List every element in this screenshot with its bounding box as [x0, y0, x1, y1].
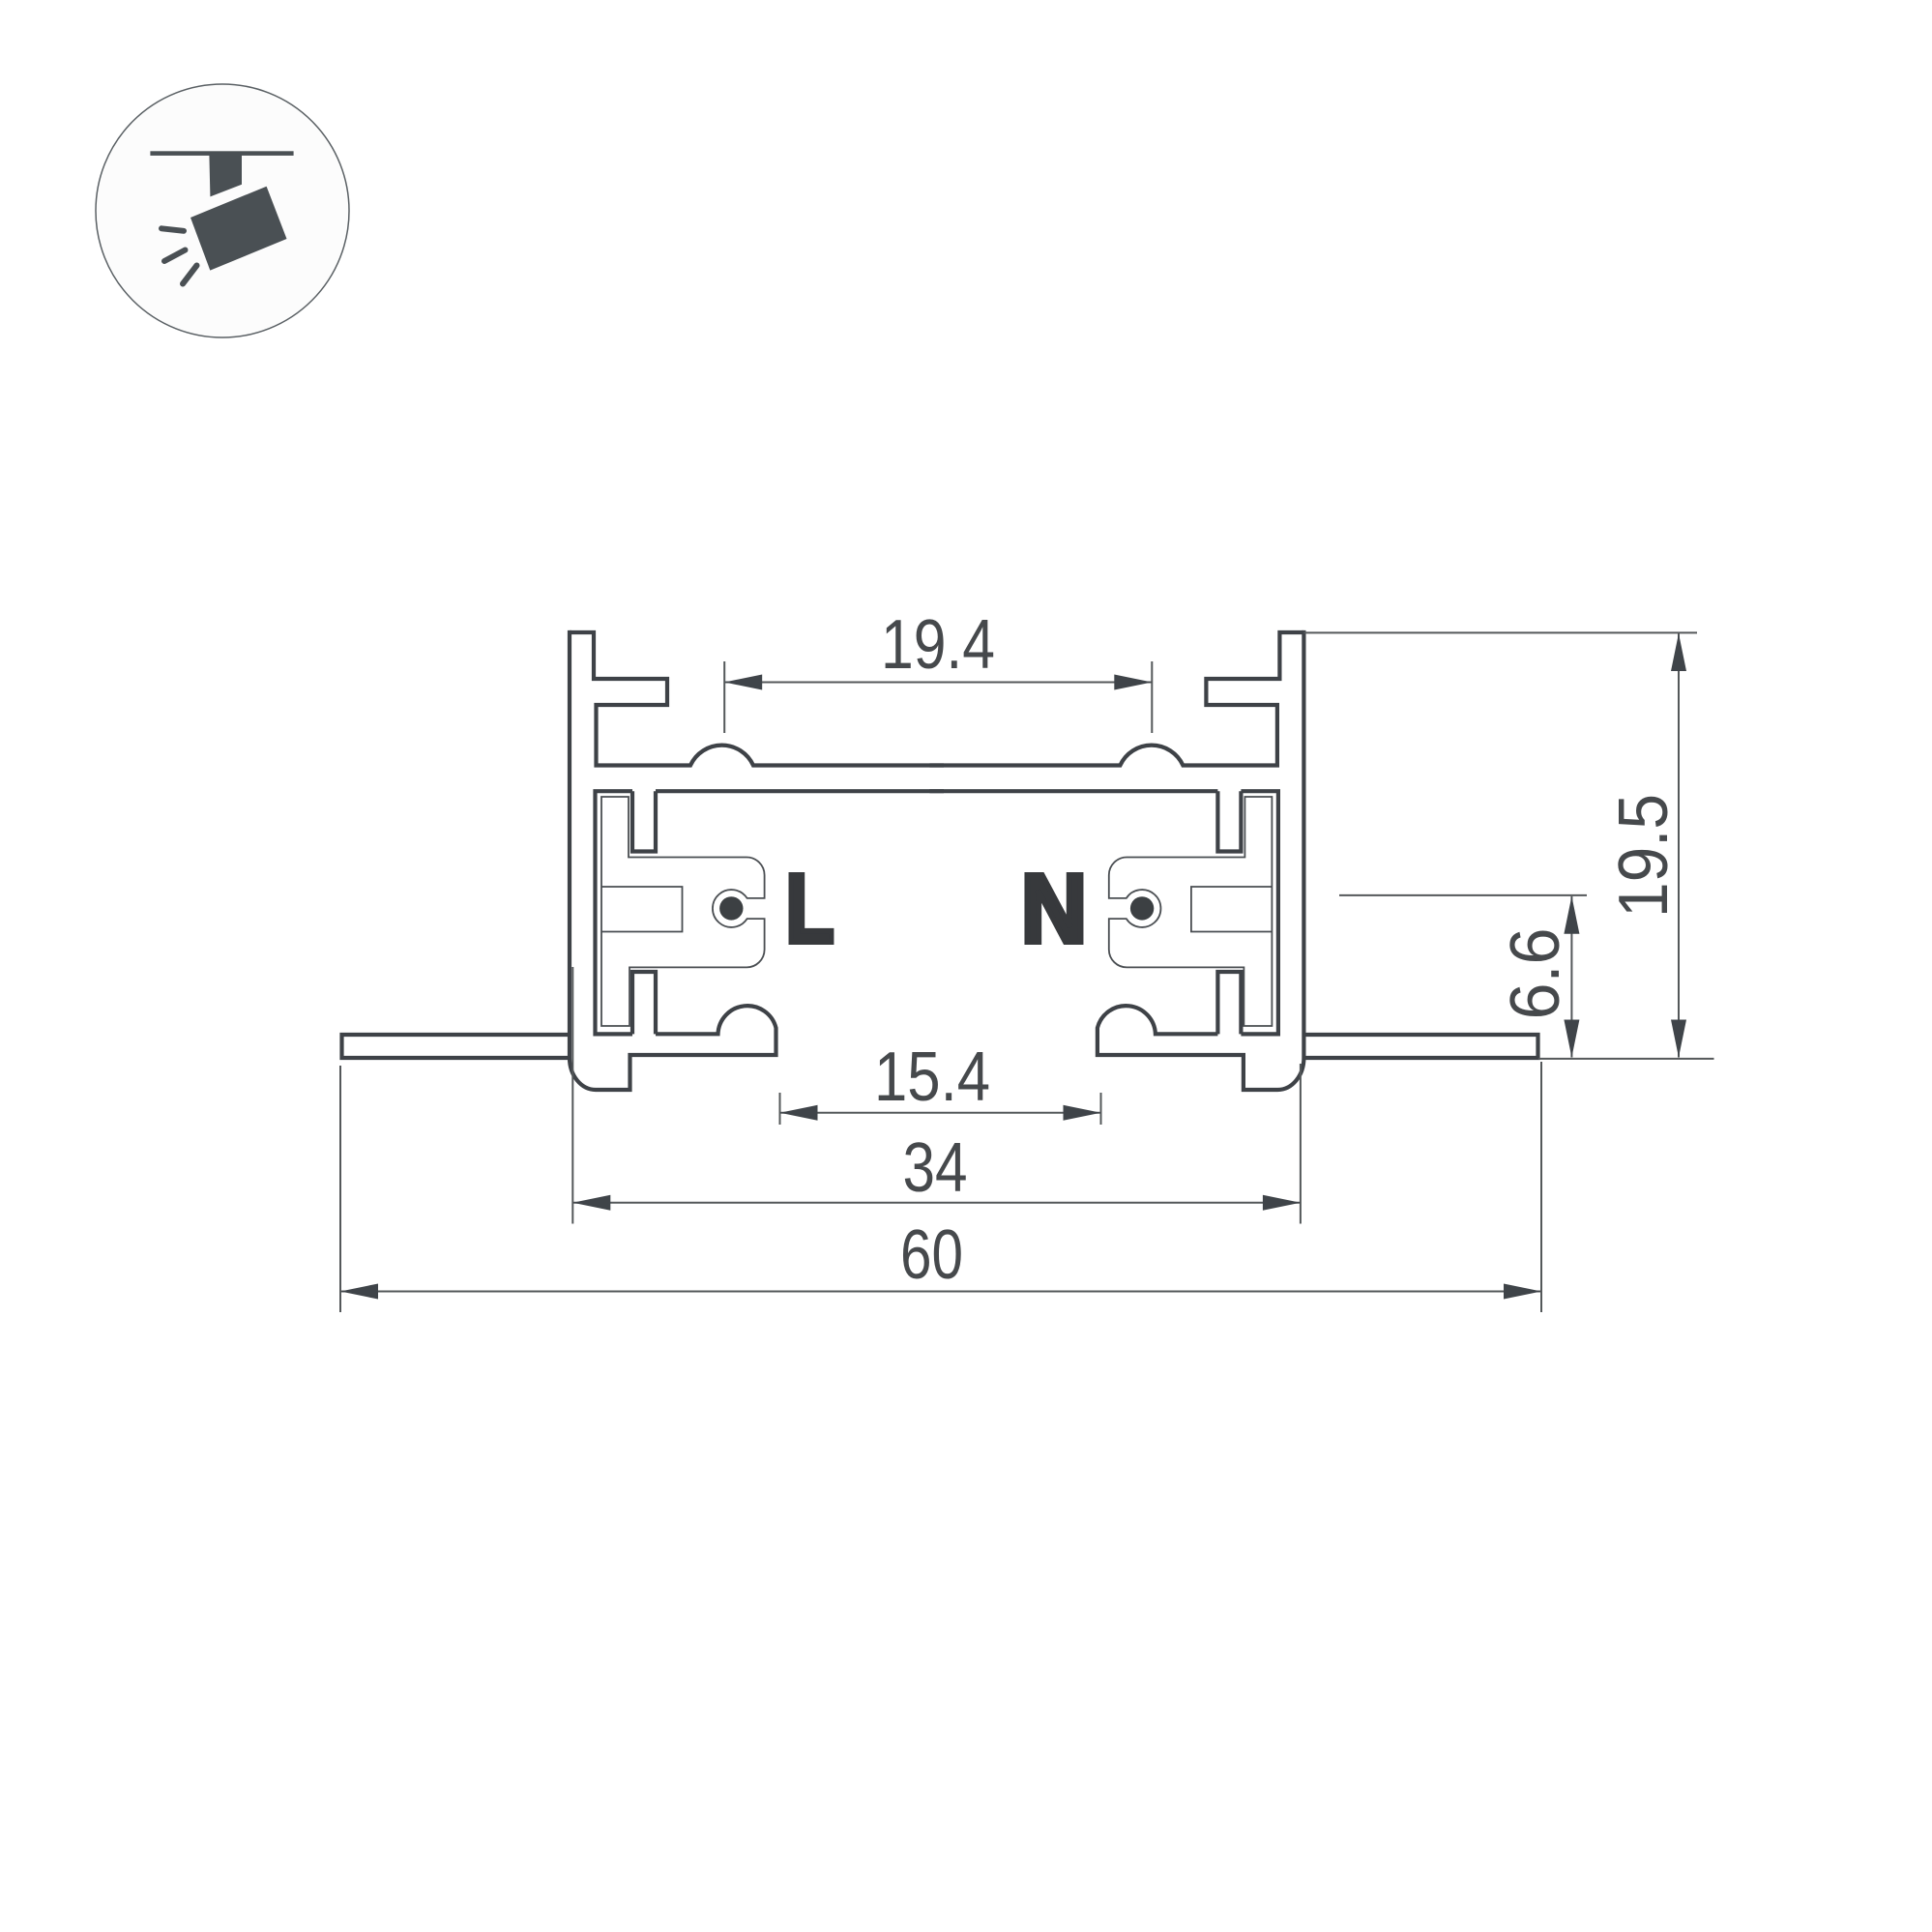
svg-text:19.5: 19.5: [1605, 794, 1683, 918]
svg-text:6.6: 6.6: [1497, 928, 1574, 1020]
svg-text:15.4: 15.4: [874, 1039, 990, 1116]
svg-text:34: 34: [903, 1129, 968, 1207]
svg-text:60: 60: [900, 1216, 963, 1294]
svg-text:19.4: 19.4: [881, 606, 995, 684]
svg-text:N: N: [1021, 855, 1087, 963]
svg-text:L: L: [786, 855, 834, 963]
